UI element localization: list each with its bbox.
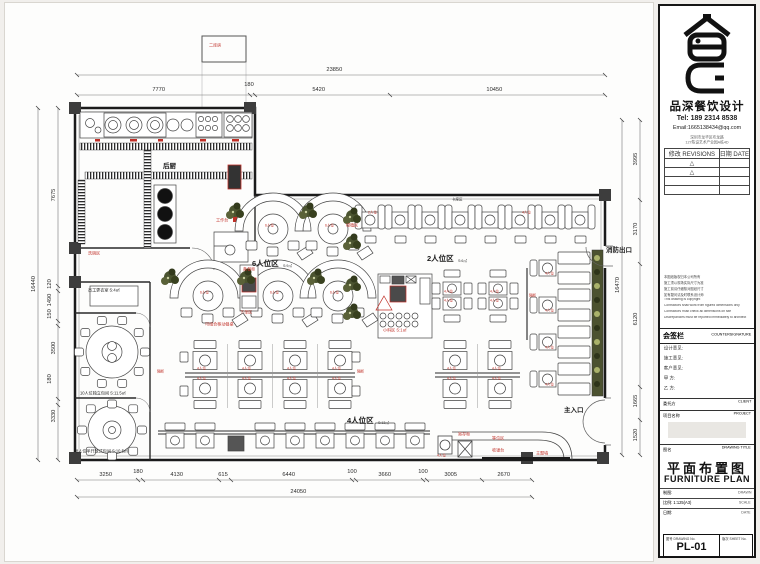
kitchen-red-ticks: [95, 139, 239, 142]
seat-tag-4: 4人位: [490, 299, 499, 302]
dim: 3005: [444, 472, 457, 478]
title-block: 品深餐饮设计 Tel: 189 2314 8538 Email:16651384…: [658, 4, 756, 558]
countersignature-header: 会签栏COUNTERSIGNATURE: [660, 328, 754, 344]
dim: 180: [133, 469, 143, 475]
prep-label: 备餐柜: [243, 268, 255, 272]
locker-label: 寄存柜: [458, 433, 470, 437]
workbench-label: 工作台: [216, 219, 228, 223]
seat-tag-4: 4人位: [444, 290, 453, 293]
dim: 150: [47, 300, 53, 329]
booth-strip-label: 卡座区: [452, 198, 462, 201]
dim: 180: [244, 82, 254, 88]
cashier-label: 收银台: [492, 449, 504, 453]
sheet-number-box: 图号 DRAWING No. PL-01 版次 SHEET No.: [663, 534, 753, 558]
dim: 3330: [51, 402, 57, 431]
dim: 7675: [51, 181, 57, 210]
project-row: 项目名称PROJECT: [660, 410, 754, 422]
address-line-2: 127陈设艺术产业园A栋4D: [678, 139, 736, 145]
room10-label: 10人位独立包间 S:11.5㎡: [80, 392, 126, 396]
seat-tag-4: 4人位: [287, 377, 296, 380]
company-name: 品深餐饮设计: [660, 98, 754, 114]
dim: 180: [47, 365, 53, 394]
seat-tag-4: 4人位: [545, 383, 554, 386]
floorplan-screenshot: { "panel": { "company": "品深餐饮设计", "tel":…: [0, 0, 760, 564]
seat-tag-4: 4人位: [242, 367, 251, 370]
dim: 100: [347, 469, 357, 475]
dim: 7770: [152, 87, 165, 93]
seat-tag-4: 4人位: [444, 299, 453, 302]
room10-table: [75, 317, 150, 388]
meta-row: 日期:DATE: [660, 508, 754, 516]
entrance-label: 主入口: [564, 408, 584, 415]
project-name-cell: [668, 422, 746, 438]
zone2-label: 2人位区 S:6㎡: [427, 249, 473, 265]
general-notes: 本图纸版权归本公司所有 施工须以现场实际尺寸为准 施工前请仔细核对图纸尺寸 如有…: [664, 274, 760, 322]
movable-label: 可组合移动餐桌: [205, 323, 234, 327]
dim: 3250: [99, 472, 112, 478]
seat-tag-4: 4人位: [545, 309, 554, 312]
phone-number: Tel: 189 2314 8538: [660, 115, 754, 122]
seat-tag-4: 4人位: [545, 272, 554, 275]
bottom-banquette: [158, 423, 430, 451]
seat-tag-4: 4人位: [197, 367, 206, 370]
zone4-label: 4人位区 S:13㎡: [347, 411, 396, 427]
seat-tag-4: 4人位: [447, 377, 456, 380]
dim: 1520: [633, 421, 639, 450]
seat-tag-4: 4人位: [492, 377, 501, 380]
seat-tag-4: 4人位: [242, 377, 251, 380]
kitchen-label: 后厨: [163, 164, 176, 171]
divider-tag: 隔断: [157, 370, 164, 373]
dim: 3500: [51, 334, 57, 363]
dim-left-total: 16440: [31, 270, 37, 299]
dim: 3170: [633, 215, 639, 244]
seat-tag-4: 4人位: [197, 377, 206, 380]
seat-tag-4: 4人位: [490, 290, 499, 293]
seat-tag-4: 4人位: [492, 367, 501, 370]
fire-exit-label: 消防出口: [606, 248, 632, 255]
kitchen-equipment: [80, 112, 252, 138]
seat-tag-4: 4人位: [545, 346, 554, 349]
wait-label: 等位区: [492, 437, 504, 441]
seat-tag-6: 6人位: [265, 224, 274, 227]
seat-tag-4: 4人位: [287, 367, 296, 370]
dim-top-total: 23850: [326, 67, 342, 73]
seat-tag-4: 4人位: [447, 367, 456, 370]
wash-label: 洗碗区: [88, 252, 100, 256]
meta-row: 比例: 1:125(A3)SCALE: [660, 498, 754, 506]
dim: 615: [218, 472, 228, 478]
drawing-title-en: FURNITURE PLAN: [660, 474, 754, 484]
seat-tag-4: 4人位: [332, 367, 341, 370]
seat-tag-6: 6人位: [270, 291, 279, 294]
signature-lines: 设计意见: 施工意见: 客户意见: 甲 方: 乙 方:: [660, 344, 754, 394]
revisions-table: 修改 REVISIONS 日期 DATE △ △: [664, 148, 750, 195]
seat-tag-4: 4人位: [437, 454, 446, 457]
client-row: 委托方CLIENT: [660, 398, 754, 410]
sheet-number: PL-01: [664, 541, 719, 553]
dim: 10450: [486, 87, 502, 93]
order-label: 下单区: [240, 311, 252, 315]
dim: 6440: [282, 472, 295, 478]
seat-tag-6: 6人位: [325, 224, 334, 227]
dim: 2670: [497, 472, 510, 478]
dim: 3995: [633, 145, 639, 174]
dim: 4130: [170, 472, 183, 478]
dim: 5420: [312, 87, 325, 93]
dim-bottom-total: 24050: [290, 489, 306, 495]
drawing-title-row: 图名DRAWING TITLE: [660, 444, 754, 456]
dim: 3660: [378, 472, 391, 478]
seat-tag-6: 6人位: [330, 291, 339, 294]
theme-wall-label: 主题墙: [536, 452, 548, 456]
divider-tag: 隔断: [529, 294, 536, 297]
dim: 100: [418, 469, 428, 475]
dim-right-total: 16470: [615, 271, 621, 300]
email-address: Email:1665138434@qq.com: [665, 125, 750, 130]
staff-room-label: 员工更衣室 S:4㎡: [88, 289, 120, 293]
plant-tag: 绿植区: [346, 224, 358, 228]
annex-label: 二库房: [209, 44, 221, 48]
seat-tag-4: 4人位: [522, 211, 531, 214]
four-seat-grid: [180, 341, 520, 409]
divider-tag: 隔断: [357, 370, 364, 373]
dim: 6120: [633, 305, 639, 334]
zone6-label: 6人位区 S:9㎡: [252, 254, 298, 270]
meta-row: 制图:DRAWN: [660, 488, 754, 496]
spice-label: 小料区 S:1㎡: [383, 329, 407, 333]
floor-plan-drawing: [0, 0, 760, 564]
room8-label: 8人位半开放式包间 S:10.5㎡: [76, 450, 128, 454]
fridge: [228, 165, 241, 189]
seat-tag-2: 2人位: [368, 211, 377, 214]
company-logo-icon: [677, 14, 737, 94]
plant-screen: [592, 250, 603, 396]
seat-tag-6: 6人位: [200, 291, 209, 294]
stove-line: [154, 185, 176, 243]
seat-tag-4: 4人位: [332, 377, 341, 380]
dim: 1665: [633, 387, 639, 416]
